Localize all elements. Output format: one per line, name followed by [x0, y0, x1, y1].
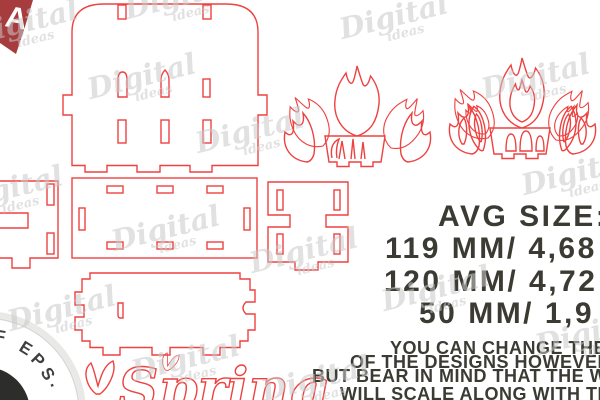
piece-arched-back-panel: [63, 4, 267, 172]
laser-cut-product-preview: Spring A F E P S ·: [0, 0, 600, 400]
butterfly-icon: [86, 361, 114, 394]
piece-spring-word: Spring: [86, 351, 328, 400]
piece-crocus-flowers-simple: [280, 66, 433, 167]
avg-size-line: 120 MM/ 4,72: [384, 267, 597, 297]
piece-long-side-panel: [72, 178, 257, 258]
corner-ribbon-badge: A: [0, 0, 33, 54]
spring-outline-text: Spring: [118, 356, 328, 400]
note-line: BUT BEAR IN MIND THAT THE WID: [312, 367, 600, 385]
avg-size-line: 119 MM/ 4,68: [385, 234, 597, 264]
piece-divider-bracket-right: [268, 182, 348, 270]
note-line: WILL SCALE ALONG WITH THE: [340, 385, 600, 400]
avg-size-line: 50 MM/ 1,9: [419, 299, 594, 329]
piece-notched-side-panel: [75, 273, 255, 355]
ribbon-letter: A: [3, 0, 30, 36]
avg-size-title: AVG SIZE:: [438, 202, 600, 232]
file-format-badge: F E P S ·: [0, 314, 83, 400]
piece-crocus-flowers-detailed: [445, 58, 598, 159]
piece-divider-bracket-left: [0, 181, 58, 268]
